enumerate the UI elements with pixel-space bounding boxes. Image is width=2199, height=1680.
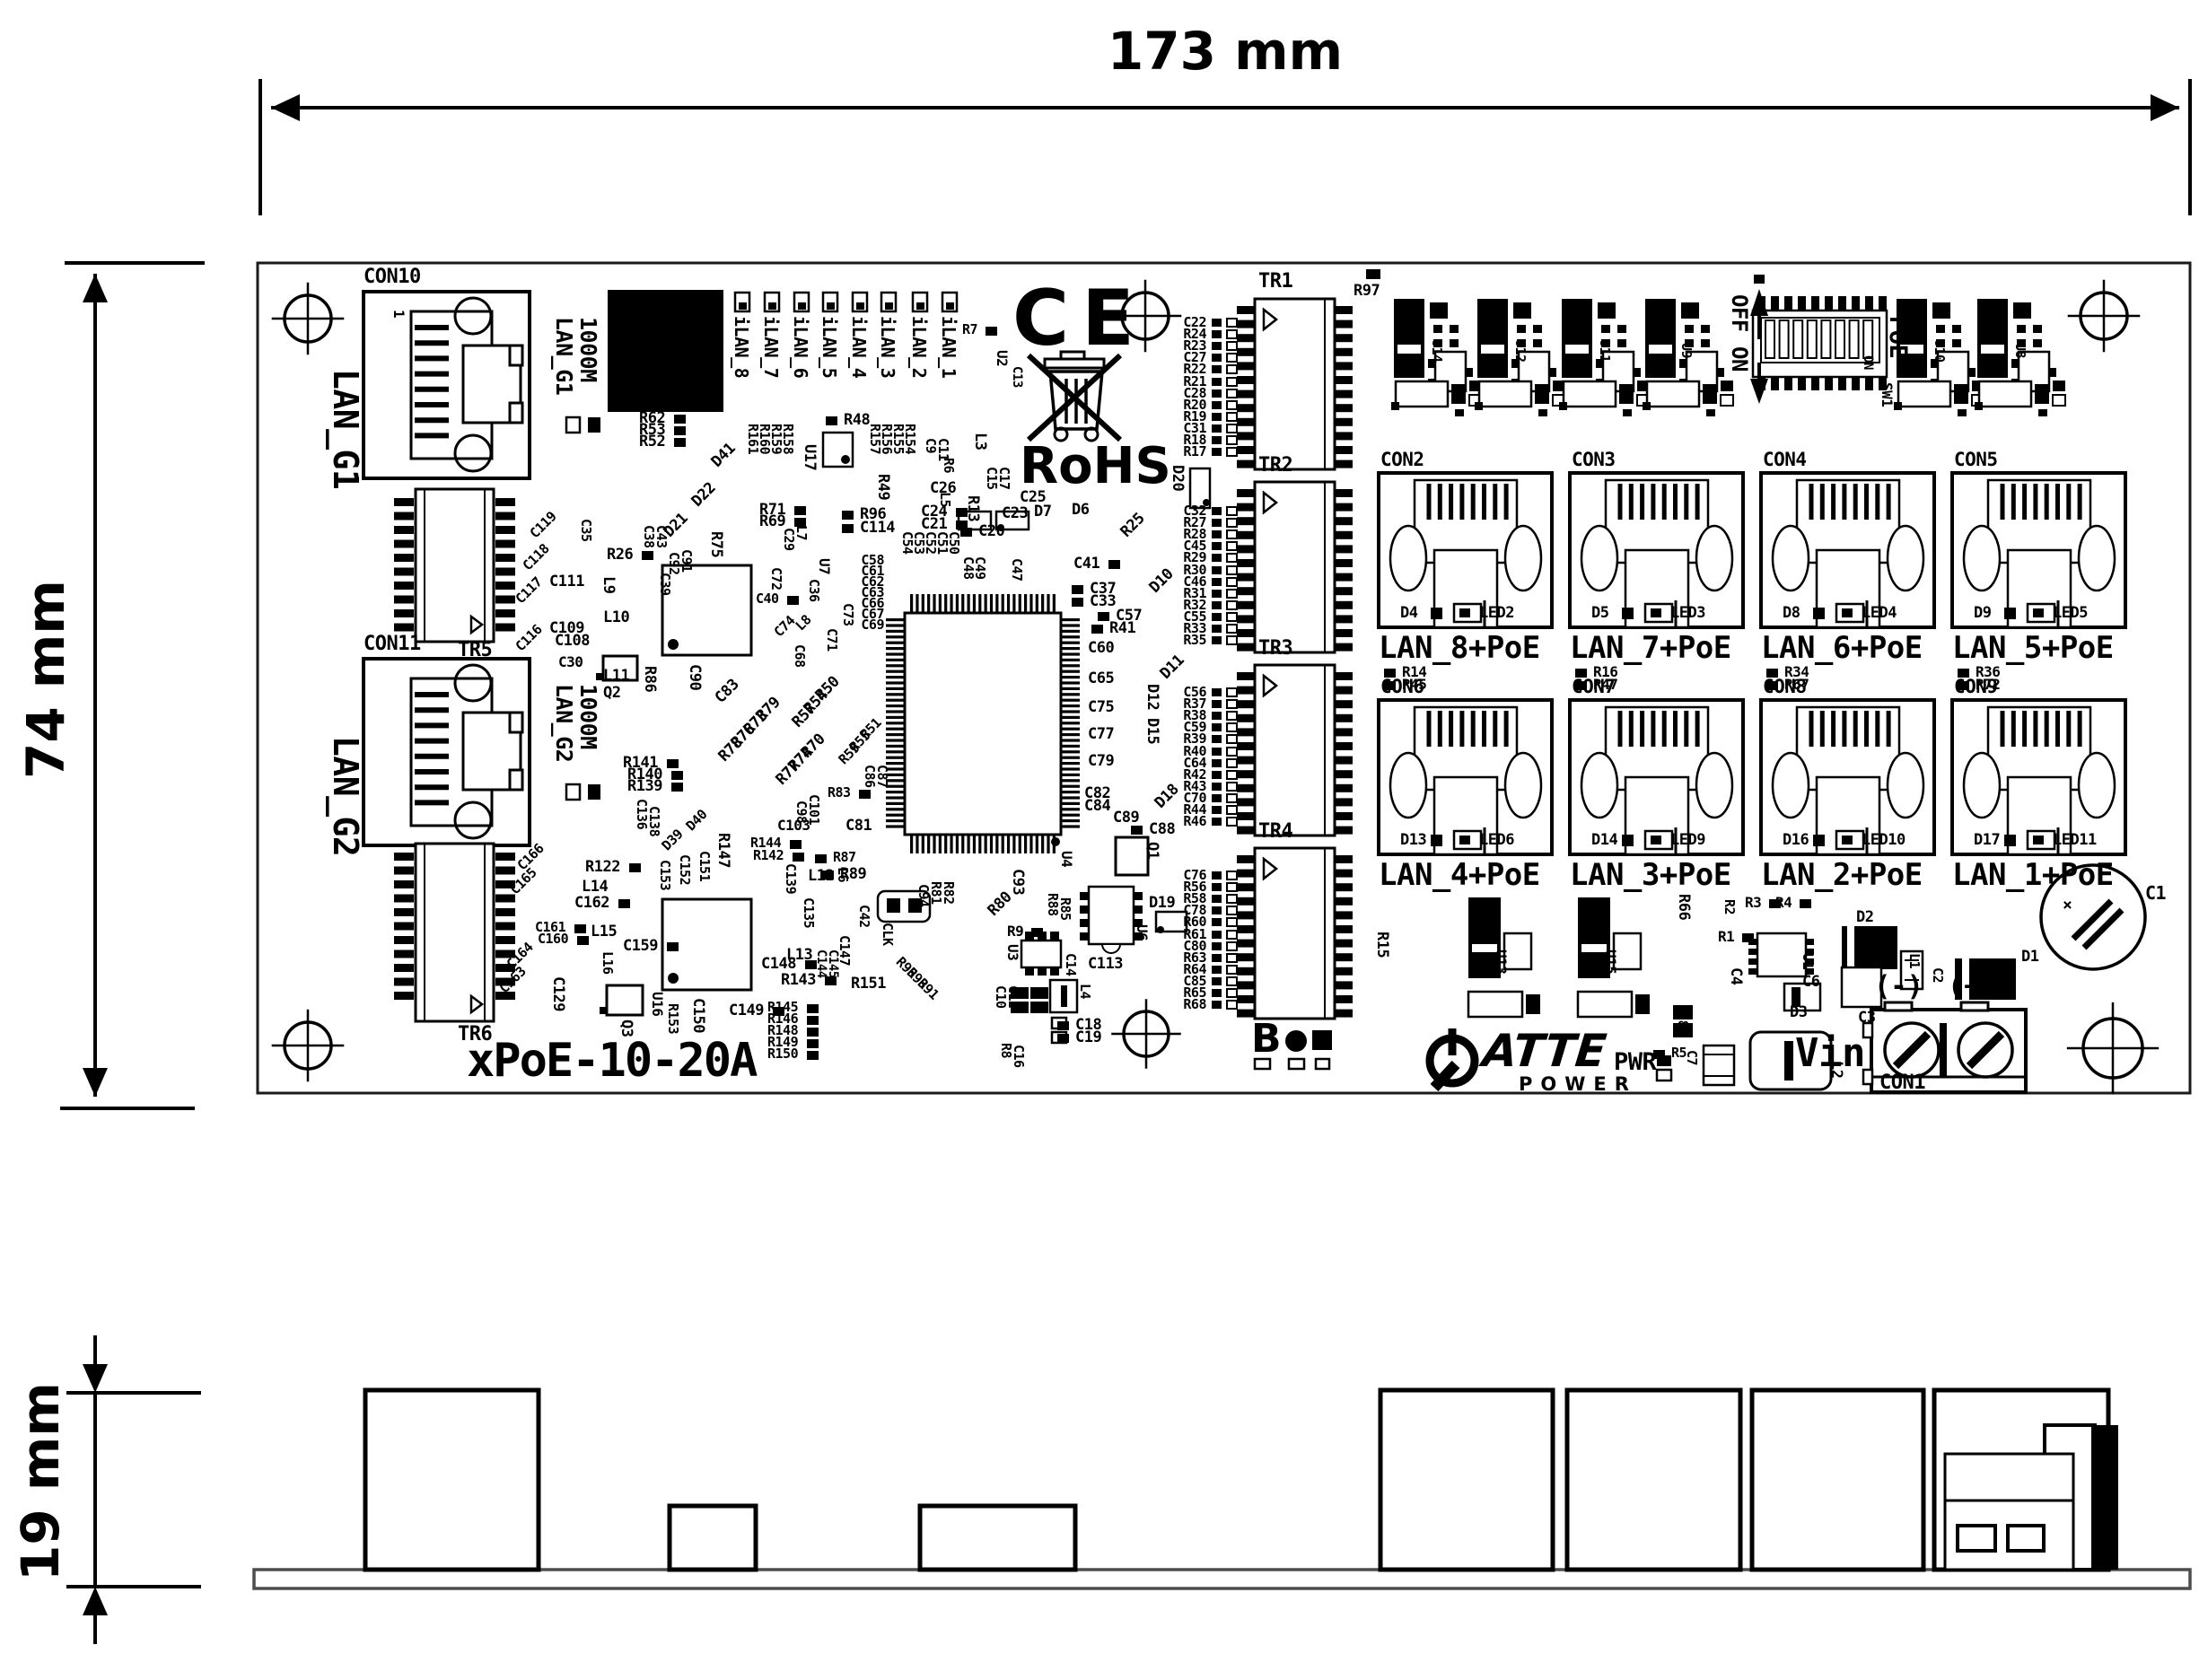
smd-pad — [1226, 341, 1238, 351]
silkscreen-label: C42 — [857, 905, 871, 928]
silkscreen-label: C149 — [729, 1003, 764, 1019]
port-led-label: LED4 — [1862, 606, 1897, 621]
silkscreen-label: L4 — [1078, 984, 1091, 999]
silkscreen-label: D2 — [1856, 910, 1873, 925]
uplink-port-name: LAN_G1 — [329, 369, 363, 489]
dip-off-label: OFF — [1729, 294, 1750, 332]
silkscreen-label: Q2 — [603, 686, 620, 701]
smd-pad — [1212, 554, 1222, 562]
ilan-led-label: iLAN_6 — [792, 316, 810, 378]
dip-sw1-label: SW1 — [1879, 382, 1894, 407]
uplink-con-label: CON10 — [364, 267, 421, 287]
silkscreen-label: R97 — [1354, 284, 1380, 299]
silkscreen-label: C20 — [978, 524, 1004, 539]
silkscreen-label: L1 — [1907, 953, 1921, 968]
silkscreen-label: R75 — [708, 531, 723, 557]
smd-pad — [1226, 770, 1238, 780]
silkscreen-label: C13 — [1011, 366, 1023, 388]
smd-pad — [1226, 988, 1238, 998]
smd-pad — [1212, 895, 1222, 903]
smd-pad — [1212, 448, 1222, 456]
smd-pad — [815, 854, 827, 863]
smd-pad — [1212, 918, 1222, 926]
port-con-label: CON4 — [1763, 451, 1807, 469]
silkscreen-label: C111 — [549, 574, 584, 590]
silkscreen-label: C49 — [973, 556, 986, 580]
silkscreen-label: C89 — [1113, 810, 1139, 826]
smd-pad — [674, 438, 686, 447]
port-con-label: CON5 — [1954, 451, 1998, 469]
port-diode-label: D17 — [1974, 833, 2000, 848]
silkscreen-label: R122 — [585, 860, 620, 875]
smd-pad — [793, 853, 804, 862]
silkscreen-label: L2 — [1828, 1061, 1844, 1078]
transformer-col-label: R17 — [1183, 445, 1206, 459]
port-diode-label: D14 — [1591, 833, 1617, 848]
smd-pad — [807, 1051, 819, 1060]
silkscreen-label: R15 — [1374, 932, 1389, 958]
silkscreen-label: R13 — [965, 495, 980, 521]
silkscreen-label: R3 — [1745, 896, 1761, 910]
smd-pad — [1226, 941, 1238, 951]
silkscreen-label: C3 — [1858, 1011, 1875, 1026]
port-lan-label: LAN_3+PoE — [1570, 860, 1731, 890]
smd-pad — [1226, 699, 1238, 709]
silkscreen-label: C1 — [2145, 884, 2166, 902]
port-lan-label: LAN_7+PoE — [1570, 633, 1731, 663]
silkscreen-label: C12 — [1006, 985, 1020, 1009]
silkscreen-label: D20 — [1170, 465, 1185, 491]
silkscreen-label: C7 — [1685, 1050, 1698, 1065]
smd-pad — [667, 759, 679, 768]
smd-pad — [671, 783, 683, 792]
silkscreen-label: R154 — [903, 424, 916, 454]
silkscreen-label: L14 — [582, 879, 608, 895]
transformer-col-label: R46 — [1183, 815, 1206, 828]
smd-pad — [1212, 954, 1222, 962]
silkscreen-label: C21 — [921, 517, 947, 532]
smd-pad — [807, 1016, 819, 1025]
port-led-label: LED2 — [1479, 606, 1514, 621]
silkscreen-label: D12 — [1144, 684, 1160, 710]
smd-pad — [1212, 942, 1222, 950]
port-con-label: CON6 — [1380, 678, 1424, 696]
silkscreen-label: U9 — [1679, 343, 1693, 358]
silkscreen-label: D1 — [2021, 949, 2038, 965]
vin-negative-label: (-) — [1874, 973, 1923, 1001]
smd-pad — [671, 771, 683, 780]
smd-pad — [842, 524, 854, 533]
silkscreen-label: C77 — [1088, 727, 1114, 742]
smd-pad — [1072, 598, 1083, 607]
silkscreen-label: R151 — [851, 976, 886, 992]
silkscreen-label: C16 — [1012, 1045, 1025, 1068]
silkscreen-label: TR5 — [458, 641, 492, 661]
silkscreen-label: U10 — [1932, 339, 1946, 363]
silkscreen-label: U3 — [1005, 944, 1020, 960]
ilan-led-label: iLAN_8 — [732, 316, 750, 378]
silkscreen-label: R49 — [875, 474, 890, 500]
port-con-label: CON8 — [1763, 678, 1807, 696]
smd-pad — [1212, 424, 1222, 433]
port-diode-label: D4 — [1400, 606, 1417, 621]
silkscreen-label: R83 — [828, 786, 851, 800]
smd-pad — [790, 840, 802, 849]
silkscreen-label: C19 — [1075, 1030, 1101, 1046]
silkscreen-label: L12 — [808, 869, 834, 884]
silkscreen-label: R82 — [942, 881, 955, 905]
smd-pad — [1212, 530, 1222, 538]
brand-logo-sub: POWER — [1519, 1075, 1637, 1094]
uplink-speed-name: LAN_G1 — [553, 317, 575, 395]
smd-pad — [674, 415, 686, 424]
transformer-label: TR3 — [1258, 639, 1292, 659]
transformer-label: TR4 — [1258, 822, 1292, 842]
smd-pad — [1226, 565, 1238, 575]
silkscreen-label: R143 — [781, 973, 816, 988]
silkscreen-label: C75 — [1088, 700, 1114, 715]
dimension-height-label: 74 mm — [20, 580, 72, 779]
port-led-label: LED10 — [1862, 833, 1906, 848]
silkscreen-label: C30 — [558, 655, 583, 669]
silkscreen-label: D7 — [1034, 504, 1051, 520]
smd-pad — [1226, 894, 1238, 904]
smd-pad — [1226, 364, 1238, 374]
smd-pad — [1072, 585, 1083, 594]
port-lan-label: LAN_5+PoE — [1952, 633, 2114, 663]
smd-pad — [807, 1004, 819, 1013]
smd-pad — [642, 551, 653, 560]
smd-pad — [629, 863, 641, 872]
smd-pad — [1212, 1001, 1222, 1009]
silkscreen-label: C145 — [827, 949, 839, 978]
smd-pad — [1212, 354, 1222, 362]
brand-logo-text: ATTE — [1480, 1028, 1608, 1073]
silkscreen-label: C6 — [1802, 975, 1819, 990]
smd-pad — [1226, 377, 1238, 387]
smd-pad — [667, 942, 679, 951]
dimension-depth-label: 19 mm — [14, 1382, 66, 1581]
silkscreen-label: C73 — [841, 603, 854, 626]
ce-mark: CE — [1012, 280, 1147, 357]
smd-pad — [1212, 625, 1222, 633]
silkscreen-label: × — [2063, 897, 2072, 914]
port-diode-label: D13 — [1400, 833, 1426, 848]
smd-pad — [1212, 712, 1222, 720]
port-led-label: LED3 — [1670, 606, 1705, 621]
dip-poe-label: PoE — [1886, 316, 1910, 358]
silkscreen-label: L15 — [591, 924, 617, 940]
smd-pad — [1226, 976, 1238, 986]
smd-pad — [1212, 966, 1222, 974]
smd-pad — [1212, 542, 1222, 550]
smd-pad — [1226, 624, 1238, 634]
smd-pad — [986, 327, 997, 336]
smd-pad — [1212, 330, 1222, 338]
smd-pad — [1212, 818, 1222, 826]
con1-label: CON1 — [1879, 1073, 1925, 1093]
pcb-dimension-drawing: 173 mm 74 mm 19 mm CE RoHS xPoE-10-20A A… — [0, 0, 2199, 1680]
smd-pad — [1226, 329, 1238, 339]
port-lan-label: LAN_6+PoE — [1761, 633, 1923, 663]
silkscreen-label: C129 — [550, 976, 565, 1011]
silkscreen-label: TR6 — [458, 1025, 492, 1045]
silkscreen-label: D15 — [1144, 718, 1160, 744]
ilan-led-label: iLAN_3 — [879, 316, 897, 378]
silkscreen-label: U2 — [994, 350, 1009, 366]
uplink-con-label: CON11 — [364, 634, 421, 654]
silkscreen-label: C84 — [1084, 799, 1110, 814]
smd-pad — [1226, 635, 1238, 645]
smd-pad — [1742, 933, 1754, 942]
port-led-label: LED9 — [1670, 833, 1705, 848]
smd-pad — [1212, 507, 1222, 515]
silkscreen-label: 1 — [391, 310, 406, 318]
silkscreen-label: R2 — [1722, 899, 1736, 914]
smd-pad — [1226, 600, 1238, 610]
silkscreen-label: C162 — [574, 896, 609, 911]
silkscreen-label: C87 — [875, 765, 889, 788]
smd-pad — [1226, 412, 1238, 422]
silkscreen-label: R26 — [607, 547, 633, 563]
smd-pad — [1226, 782, 1238, 792]
silkscreen-label: C150 — [690, 998, 705, 1033]
silkscreen-label: R150 — [767, 1047, 798, 1061]
smd-pad — [1212, 319, 1222, 327]
silkscreen-label: C39 — [658, 573, 671, 596]
smd-pad — [1226, 747, 1238, 757]
uplink-port-name: LAN_G2 — [329, 736, 363, 856]
silkscreen-label: C135 — [802, 897, 815, 928]
silkscreen-label: U17 — [802, 444, 817, 470]
silkscreen-label: C113 — [1088, 957, 1123, 972]
silkscreen-label: C14 — [1064, 953, 1077, 976]
silkscreen-label: Q1 — [1144, 842, 1160, 859]
smd-pad — [1226, 930, 1238, 940]
silkscreen-label: L13 — [786, 948, 812, 963]
pwr-led-label: PWR — [1614, 1050, 1656, 1074]
silkscreen-label: R153 — [666, 1003, 679, 1034]
uplink-speed-label: 1000M — [577, 317, 600, 382]
silkscreen-label: R139 — [627, 779, 662, 794]
smd-pad — [1057, 1021, 1069, 1030]
smd-pad — [1212, 871, 1222, 879]
silkscreen-label: C69 — [861, 618, 884, 632]
smd-pad — [960, 528, 972, 537]
silkscreen-label: L10 — [603, 610, 629, 626]
port-con-label: CON3 — [1572, 451, 1616, 469]
silkscreen-label: U4 — [1059, 851, 1073, 867]
smd-pad — [1226, 400, 1238, 410]
ilan-led-label: iLAN_4 — [850, 316, 868, 378]
smd-pad — [1226, 353, 1238, 363]
smd-pad — [794, 506, 806, 515]
smd-pad — [1212, 578, 1222, 586]
smd-pad — [1226, 917, 1238, 927]
smd-pad — [1226, 793, 1238, 803]
smd-pad — [1212, 700, 1222, 708]
port-lan-label: LAN_4+PoE — [1379, 860, 1540, 890]
transformer-label: TR2 — [1258, 456, 1292, 476]
silkscreen-label: U16 — [650, 992, 664, 1016]
smd-pad — [1226, 518, 1238, 528]
silkscreen-label: R86 — [642, 666, 657, 692]
smd-pad — [1226, 871, 1238, 880]
smd-pad — [1212, 989, 1222, 997]
smd-pad — [1226, 318, 1238, 328]
silkscreen-label: U7 — [817, 558, 831, 574]
ilan-led-label: iLAN_7 — [762, 316, 780, 378]
smd-pad — [1212, 601, 1222, 609]
smd-pad — [1212, 931, 1222, 939]
silkscreen-label: C71 — [825, 628, 838, 652]
port-led-label: LED6 — [1479, 833, 1514, 848]
port-con-label: CON9 — [1954, 678, 1998, 696]
port-diode-label: D9 — [1974, 606, 1991, 621]
smd-pad — [1226, 758, 1238, 768]
silkscreen-label: C36 — [807, 579, 820, 602]
ilan-led-label: iLAN_1 — [940, 316, 958, 378]
silkscreen-label: C72 — [769, 567, 783, 591]
smd-pad — [1226, 529, 1238, 539]
smd-pad — [577, 936, 589, 945]
smd-pad — [1226, 906, 1238, 915]
uplink-speed-name: LAN_G2 — [553, 684, 575, 762]
smd-pad — [1226, 424, 1238, 433]
dip-on-label: ON — [1729, 346, 1750, 372]
smd-pad — [574, 924, 586, 933]
silkscreen-label: U1 — [1800, 953, 1815, 969]
smd-pad — [1212, 723, 1222, 731]
smd-pad — [1226, 541, 1238, 551]
smd-pad — [807, 1039, 819, 1048]
smd-pad — [1212, 590, 1222, 598]
smd-pad — [1226, 435, 1238, 445]
smd-pad — [1212, 389, 1222, 398]
silkscreen-label: L16 — [600, 951, 614, 975]
smd-pad — [1212, 342, 1222, 350]
silkscreen-label: C90 — [687, 664, 702, 690]
port-diode-label: D16 — [1783, 833, 1809, 848]
silkscreen-label: U12 — [1513, 339, 1527, 363]
smd-pad — [1226, 953, 1238, 963]
silkscreen-label: C25 — [1020, 490, 1046, 505]
silkscreen-label: C81 — [845, 818, 872, 834]
silkscreen-label: R52 — [639, 434, 665, 450]
silkscreen-label: C2 — [1931, 967, 1944, 983]
smd-pad — [1212, 413, 1222, 421]
silkscreen-label: Q3 — [618, 1019, 634, 1037]
smd-pad — [1226, 447, 1238, 457]
smd-pad — [1226, 711, 1238, 721]
silkscreen-label: R41 — [1109, 621, 1135, 636]
silkscreen-label: R4 — [1775, 896, 1792, 910]
silkscreen-label: R87 — [833, 851, 856, 864]
smd-pad — [1212, 636, 1222, 644]
silkscreen-label: R48 — [844, 413, 870, 428]
smd-pad — [1212, 748, 1222, 756]
smd-pad — [1212, 806, 1222, 814]
silkscreen-label: C35 — [579, 519, 592, 542]
uplink-speed-label: 1000M — [577, 684, 600, 749]
smd-pad — [1212, 688, 1222, 696]
silkscreen-label: U14 — [1430, 339, 1443, 363]
smd-pad — [1226, 722, 1238, 732]
smd-pad — [1226, 553, 1238, 563]
silkscreen-label: C151 — [697, 851, 711, 881]
port-diode-label: D5 — [1591, 606, 1608, 621]
smd-pad — [1091, 625, 1103, 634]
silkscreen-label: C88 — [1149, 822, 1175, 837]
silkscreen-label: U13 — [1494, 949, 1508, 974]
silkscreen-label: R7 — [962, 323, 977, 337]
silkscreen-label: L5 — [938, 492, 951, 507]
smd-pad — [1226, 882, 1238, 892]
smd-pad — [1226, 589, 1238, 599]
port-led-label: LED11 — [2053, 833, 2097, 848]
smd-pad — [1800, 899, 1811, 908]
silkscreen-label: C91 — [679, 549, 693, 573]
silkscreen-label: C160 — [538, 932, 568, 946]
silkscreen-label: C41 — [1073, 556, 1099, 572]
board-model: xPoE-10-20A — [467, 1037, 756, 1084]
silkscreen-label: C17 — [997, 467, 1011, 490]
smd-pad — [1226, 1000, 1238, 1010]
smd-pad — [787, 596, 799, 605]
smd-pad — [842, 511, 854, 520]
port-led-label: LED5 — [2053, 606, 2088, 621]
smd-pad — [1131, 826, 1143, 835]
smd-pad — [1226, 506, 1238, 516]
smd-pad — [1212, 977, 1222, 985]
smd-pad — [1212, 794, 1222, 802]
fiducial-b-mark: B — [1251, 1019, 1282, 1059]
smd-pad — [807, 1028, 819, 1037]
smd-pad — [1212, 759, 1222, 767]
silkscreen-label: C139 — [784, 863, 797, 894]
silkscreen-label: C33 — [1090, 594, 1116, 609]
silkscreen-label: C108 — [555, 634, 590, 649]
silkscreen-label: C43 — [654, 525, 668, 548]
smd-pad — [1653, 1050, 1665, 1059]
smd-pad — [1212, 771, 1222, 779]
smd-pad — [1212, 378, 1222, 386]
smd-pad — [1212, 401, 1222, 409]
silkscreen-label: C50 — [947, 531, 960, 555]
smd-pad — [1226, 389, 1238, 398]
silkscreen-label: C68 — [793, 644, 806, 668]
smd-pad — [1212, 735, 1222, 743]
vin-positive-label: (+) — [1948, 973, 1997, 1001]
silkscreen-label: L6 — [836, 867, 849, 882]
silkscreen-label: R85 — [1058, 897, 1072, 921]
silkscreen-label: C138 — [647, 806, 661, 836]
smd-pad — [1226, 612, 1238, 622]
rohs-mark: RoHS — [1020, 442, 1171, 492]
silkscreen-label: U6 — [1135, 924, 1149, 941]
smd-pad — [1226, 805, 1238, 815]
silkscreen-label: C4 — [1728, 967, 1743, 984]
port-lan-label: LAN_2+PoE — [1761, 860, 1923, 890]
smd-pad — [1057, 1034, 1069, 1043]
smd-pad — [1108, 560, 1120, 569]
silkscreen-label: R142 — [753, 849, 784, 862]
smd-pad — [674, 426, 686, 435]
silkscreen-label: C103 — [777, 818, 810, 833]
silkscreen-label: C159 — [623, 939, 658, 954]
smd-pad — [1212, 365, 1222, 373]
port-con-label: CON2 — [1380, 451, 1424, 469]
